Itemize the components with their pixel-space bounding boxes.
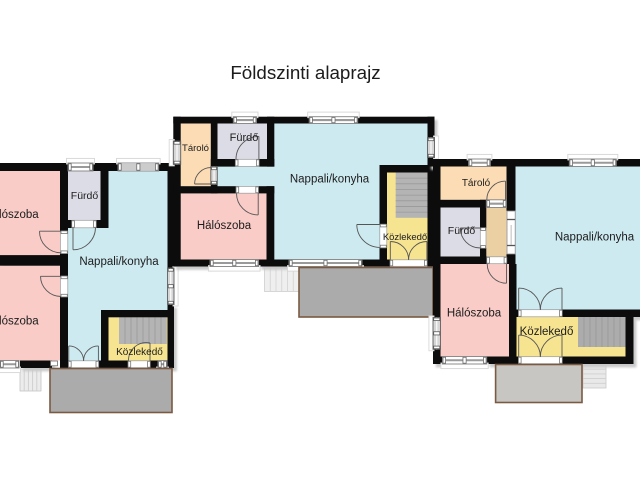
svg-text:Hálószoba: Hálószoba (447, 308, 502, 320)
svg-text:Közlekedő: Közlekedő (116, 347, 163, 358)
svg-text:Nappali/konyha: Nappali/konyha (555, 232, 635, 244)
svg-text:Tároló: Tároló (182, 143, 209, 154)
svg-text:Közlekedő: Közlekedő (383, 232, 427, 243)
svg-text:Fürdő: Fürdő (71, 190, 99, 202)
svg-text:Nappali/konyha: Nappali/konyha (79, 256, 159, 268)
svg-text:Hálószoba: Hálószoba (0, 209, 39, 221)
svg-text:Földszinti alaprajz: Földszinti alaprajz (230, 62, 380, 83)
svg-text:Fürdő: Fürdő (448, 225, 476, 237)
svg-text:Tároló: Tároló (462, 178, 491, 189)
svg-text:Hálószoba: Hálószoba (197, 220, 252, 232)
svg-text:Fürdő: Fürdő (230, 132, 259, 144)
svg-text:Közlekedő: Közlekedő (520, 326, 574, 338)
svg-text:Hálószoba: Hálószoba (0, 316, 39, 328)
svg-text:Nappali/konyha: Nappali/konyha (290, 174, 370, 186)
